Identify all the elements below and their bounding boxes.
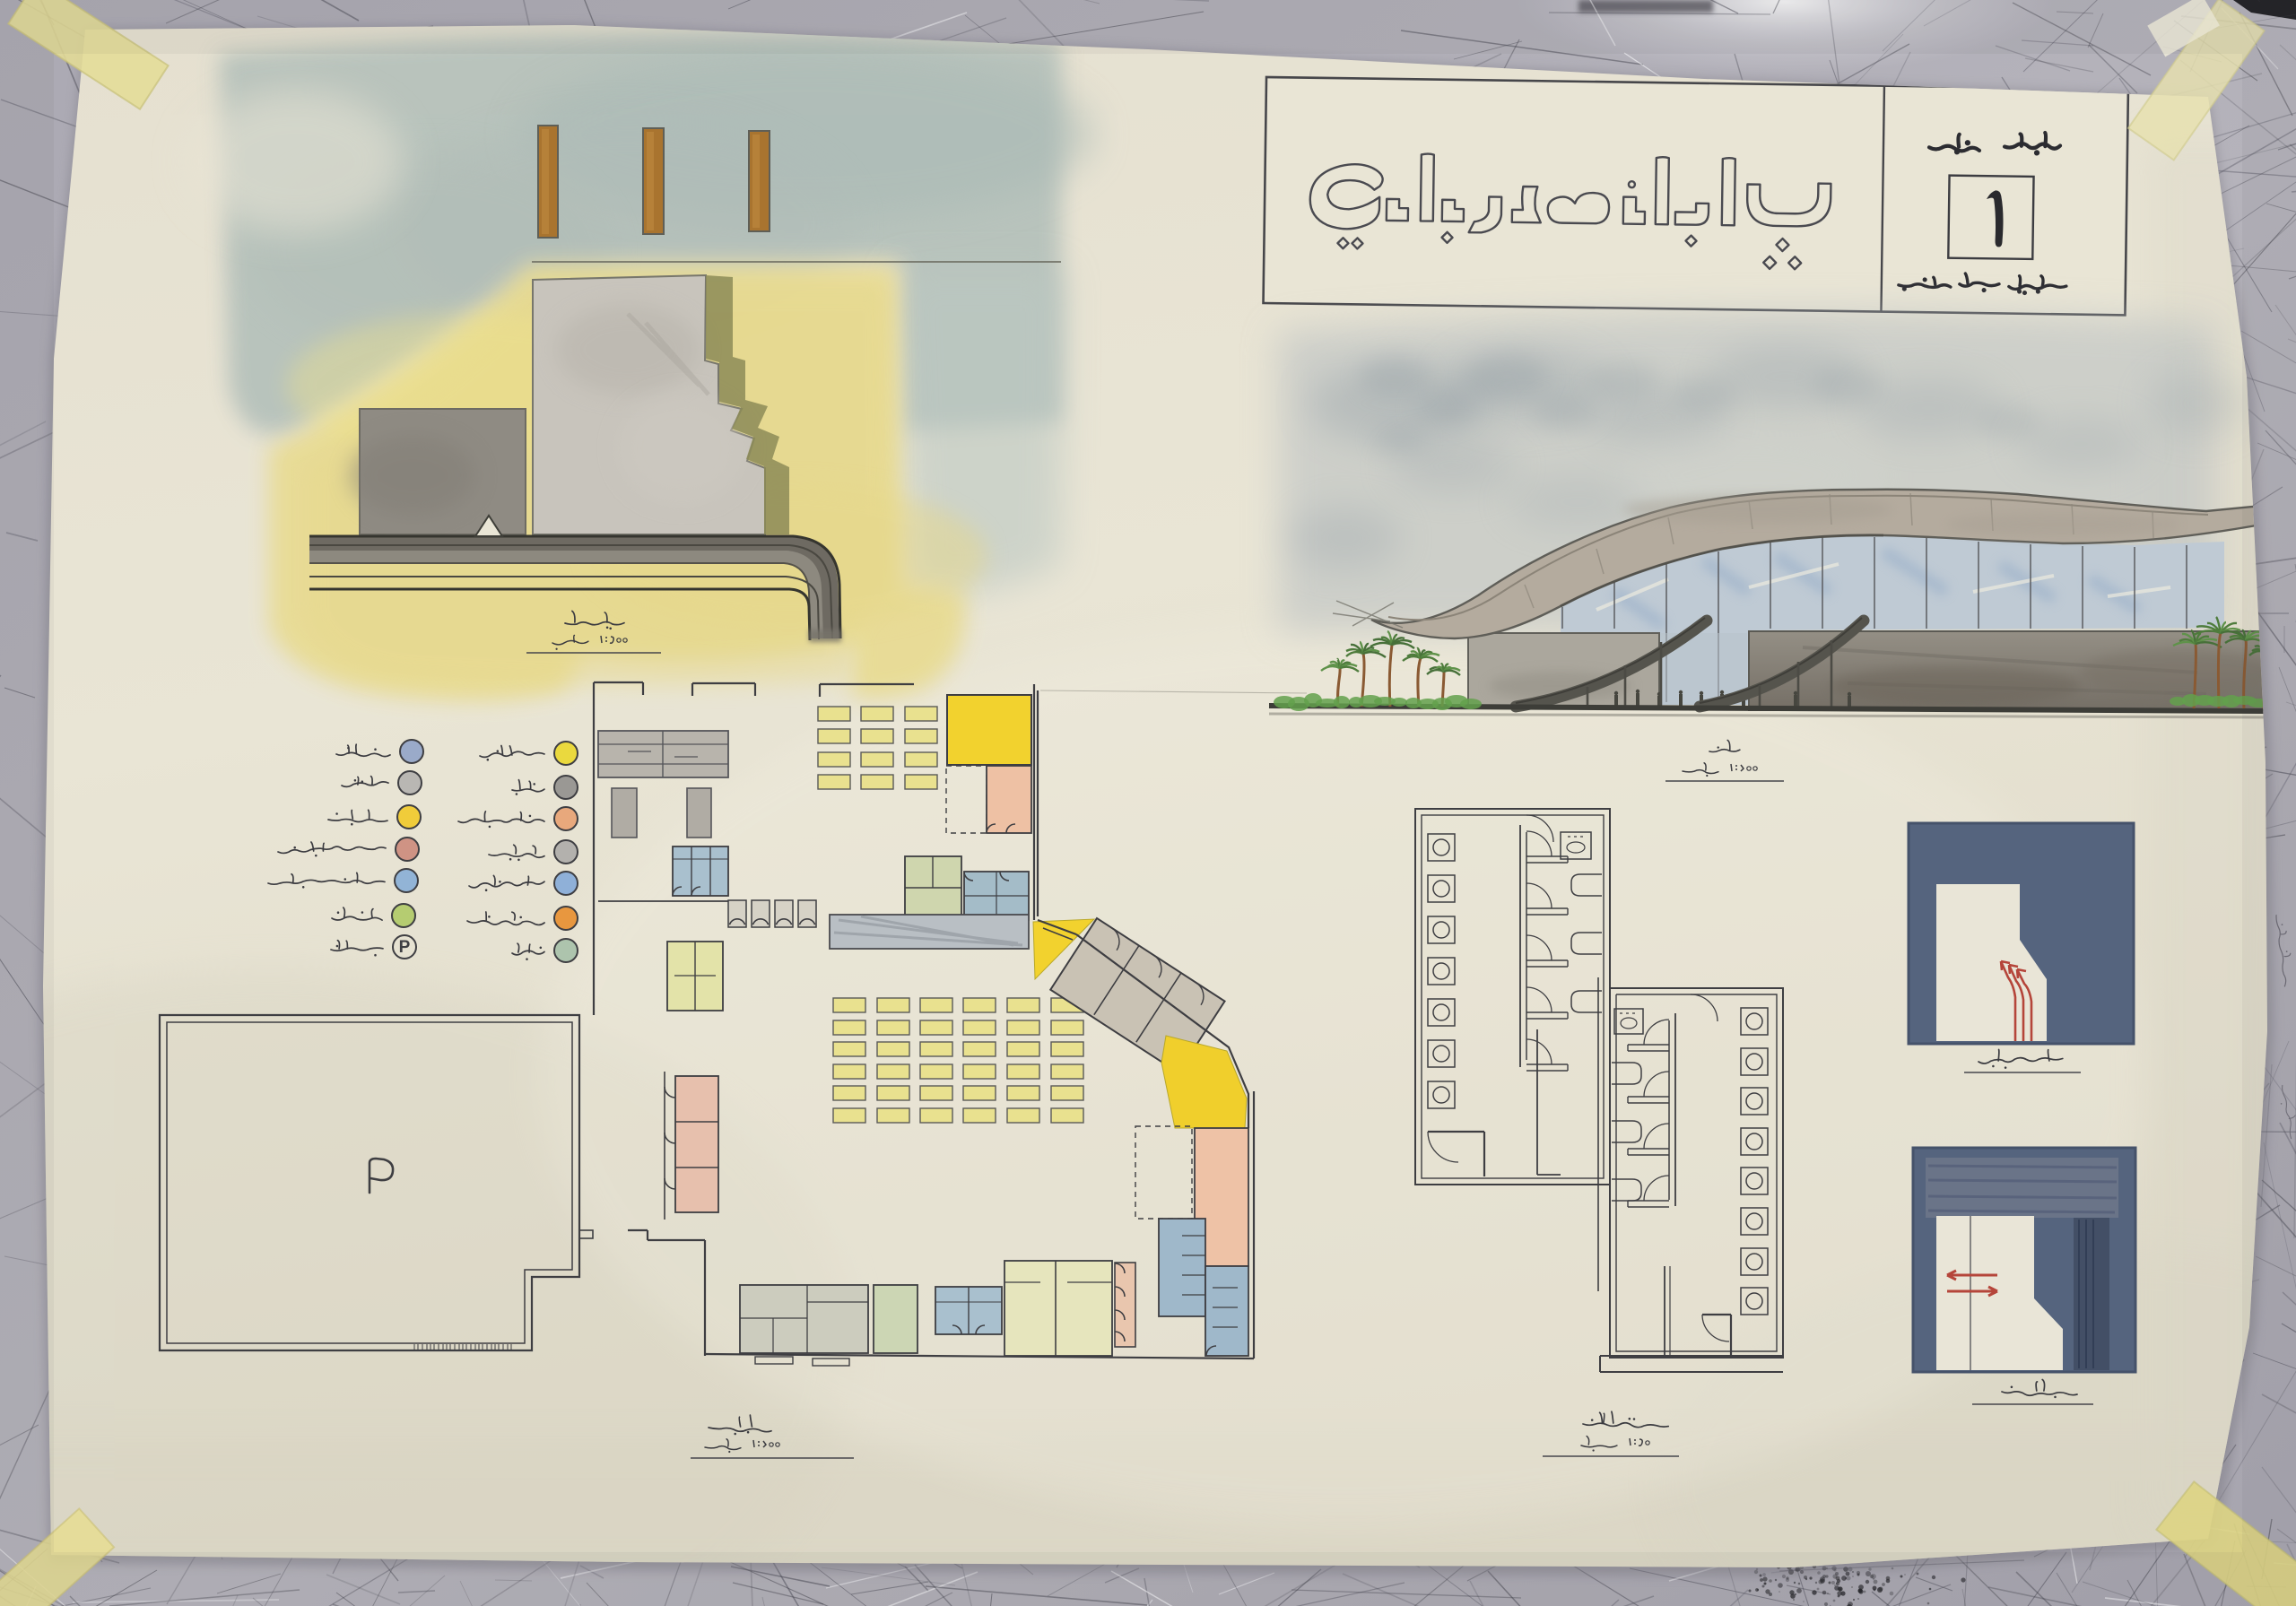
svg-text:P: P [399,938,411,957]
